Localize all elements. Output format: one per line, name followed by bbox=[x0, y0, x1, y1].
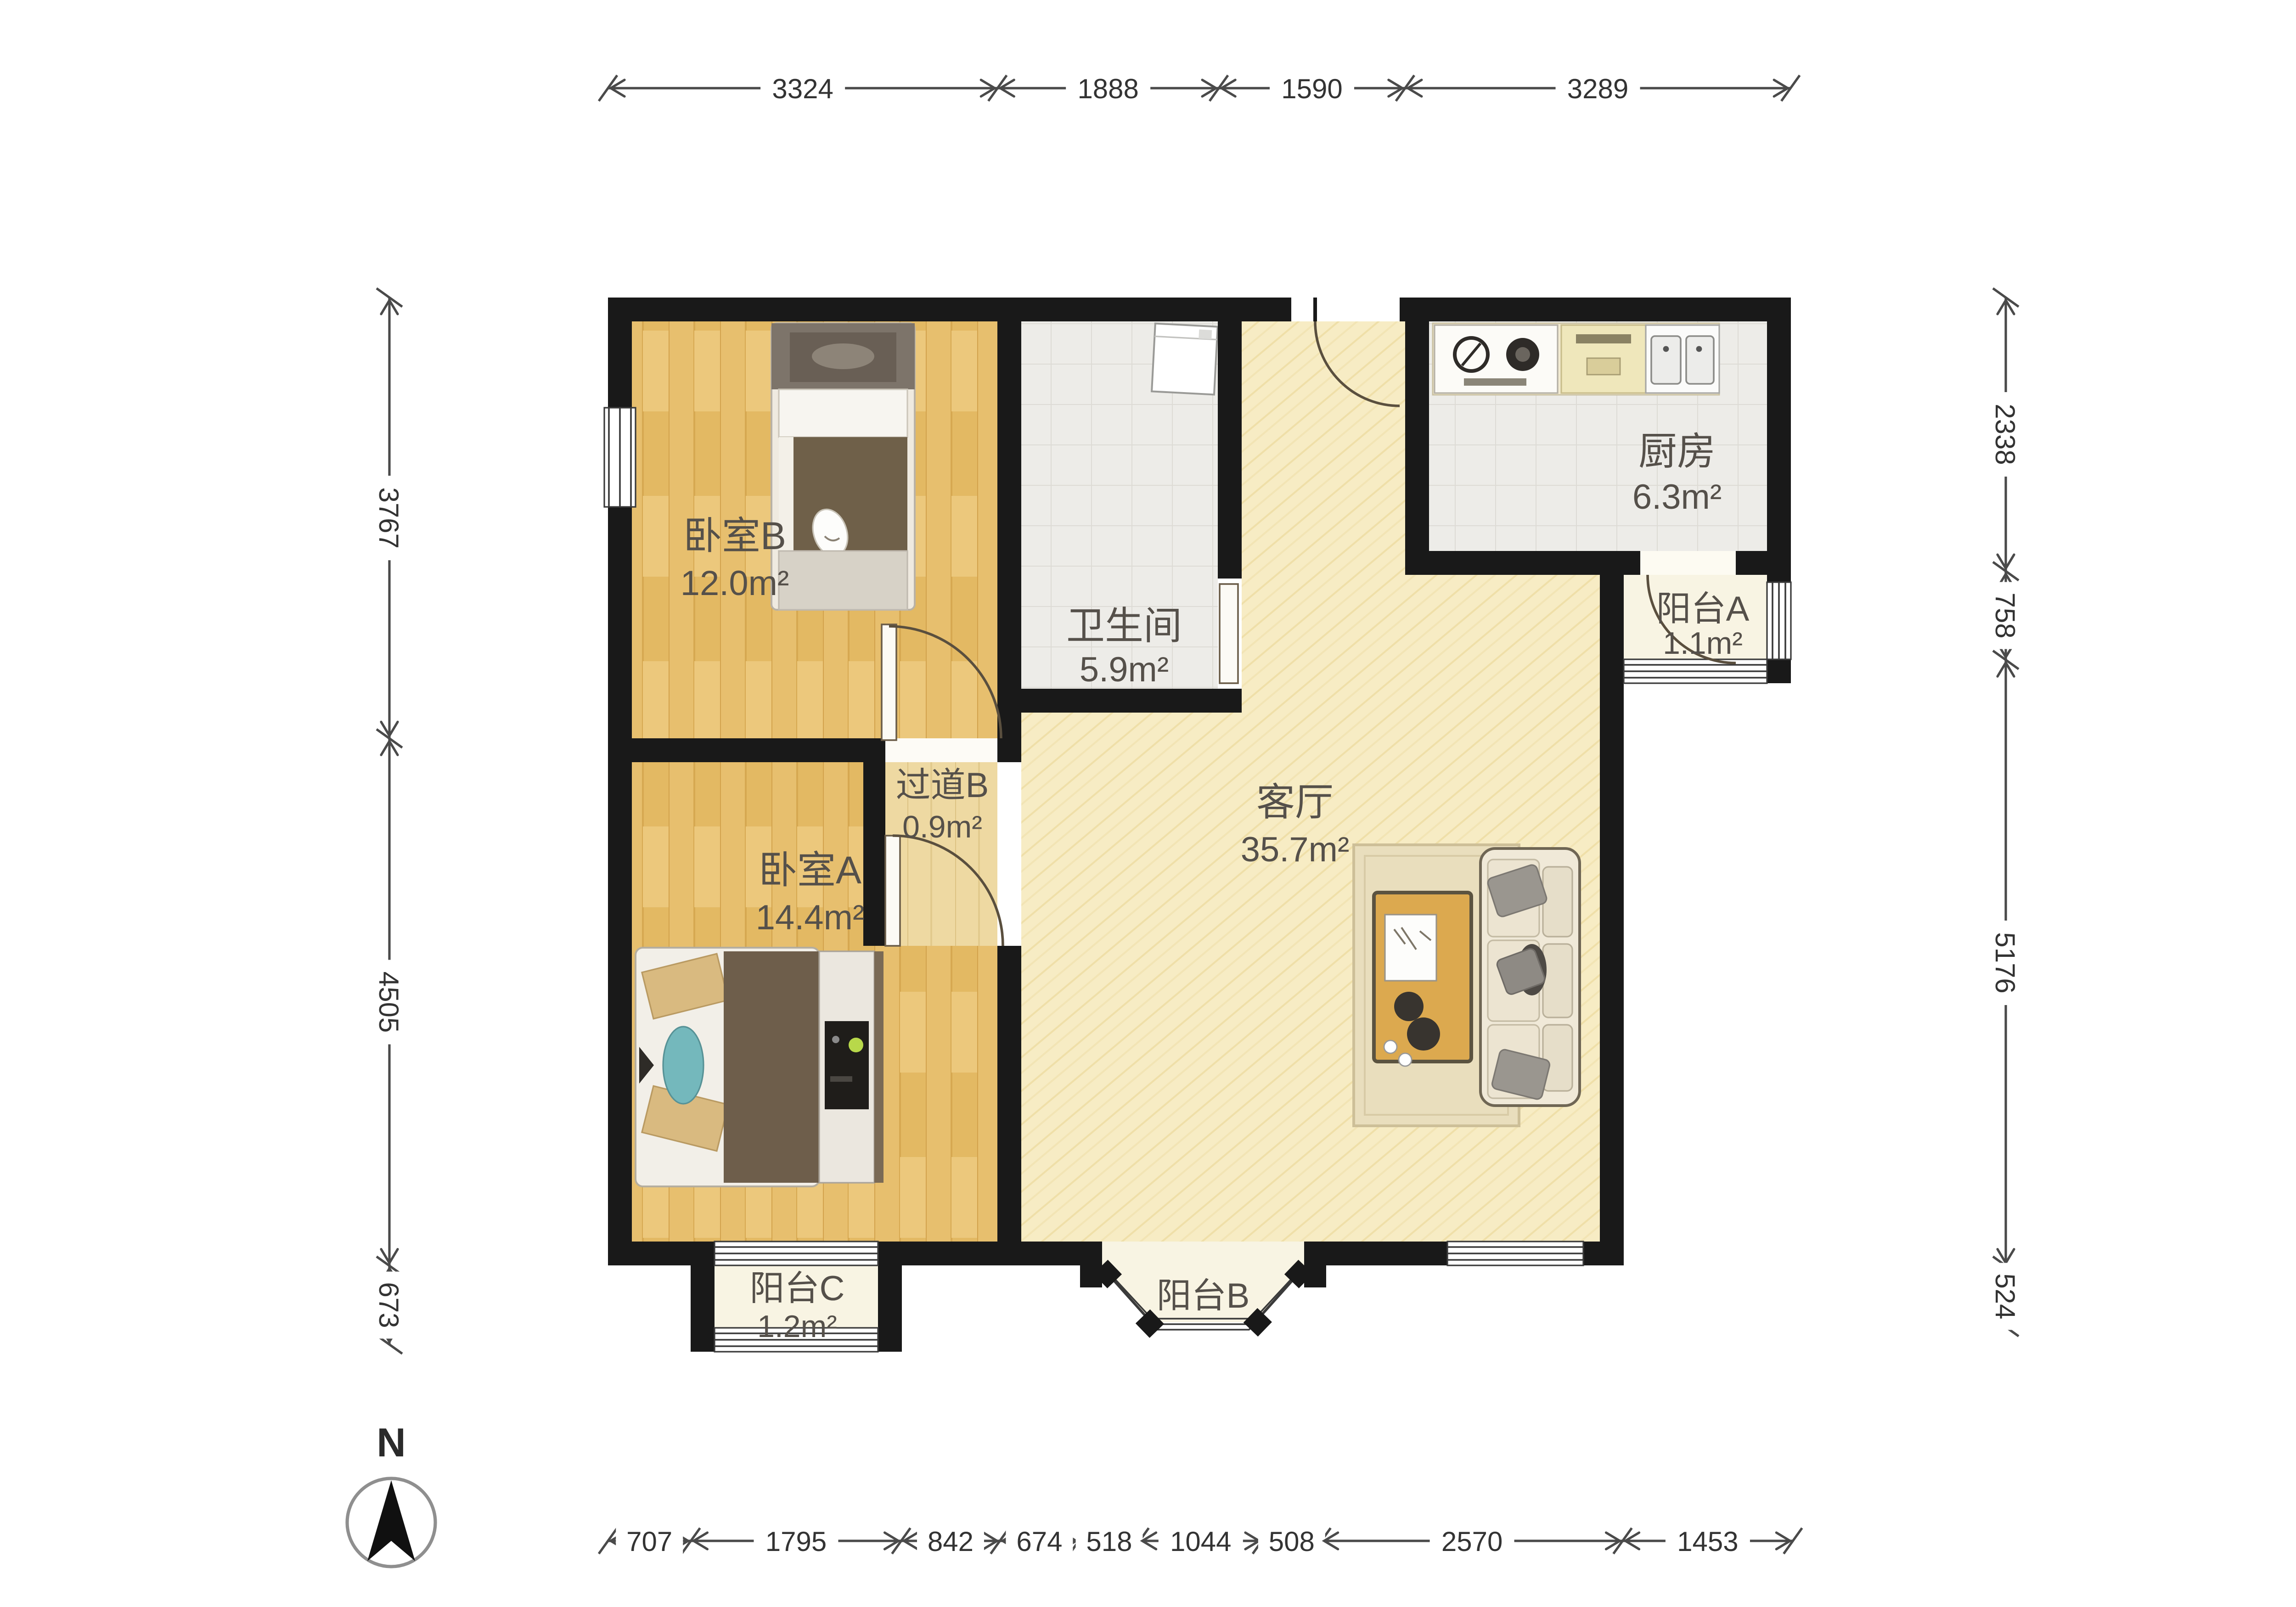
dim-label-left-1: 4505 bbox=[373, 972, 404, 1033]
bay-post-left bbox=[1080, 1242, 1102, 1287]
wall-bathroom-east bbox=[1218, 298, 1242, 579]
dim-label-right-3: 524 bbox=[1990, 1273, 2020, 1319]
dim-label-bottom-5: 1044 bbox=[1170, 1526, 1231, 1557]
wall-bottom-1 bbox=[608, 1242, 715, 1265]
kitchen-label: 厨房 bbox=[1638, 430, 1716, 473]
kitchen-area: 6.3m² bbox=[1632, 478, 1722, 517]
wall-bathroom-south bbox=[997, 689, 1242, 713]
window-bedroom-a-balcony bbox=[715, 1242, 878, 1265]
dim-label-left-2: 673 bbox=[373, 1282, 404, 1328]
wall-living-east bbox=[1600, 551, 1624, 1265]
hallway-b-label: 过道B bbox=[896, 766, 989, 805]
dim-label-bottom-1: 1795 bbox=[765, 1526, 827, 1557]
balcony-b-label: 阳台B bbox=[1157, 1276, 1250, 1315]
bedroom-a-label: 卧室A bbox=[759, 848, 861, 892]
wall-top-left bbox=[608, 298, 1291, 321]
hallway-b-area: 0.9m² bbox=[902, 809, 982, 844]
wall-bottom-4 bbox=[1583, 1242, 1624, 1265]
dim-label-left-0: 3767 bbox=[373, 487, 404, 548]
wall-kitchen-west bbox=[1405, 298, 1429, 551]
dim-label-top-2: 1590 bbox=[1281, 73, 1342, 104]
dim-label-bottom-8: 1453 bbox=[1677, 1526, 1738, 1557]
balcony-c-label: 阳台C bbox=[750, 1269, 845, 1308]
living-room-area: 35.7m² bbox=[1241, 830, 1350, 869]
bedroom-b-area: 12.0m² bbox=[681, 564, 789, 603]
washing-machine-icon bbox=[1152, 324, 1218, 395]
wall-bottom-3 bbox=[1326, 1242, 1447, 1265]
range-hood-icon bbox=[1561, 325, 1646, 393]
bed-a-icon bbox=[636, 948, 884, 1186]
balcony-c-wall-left bbox=[691, 1265, 715, 1352]
dim-label-bottom-3: 674 bbox=[1016, 1526, 1062, 1557]
bathroom-label: 卫生间 bbox=[1066, 604, 1182, 647]
dim-label-top-3: 3289 bbox=[1567, 73, 1628, 104]
compass-north-label: N bbox=[377, 1420, 406, 1465]
bed-b-icon bbox=[771, 323, 915, 610]
dim-label-top-1: 1888 bbox=[1077, 73, 1138, 104]
dim-label-right-1: 758 bbox=[1990, 593, 2020, 639]
coffee-table-icon bbox=[1374, 893, 1471, 1066]
dim-label-bottom-4: 518 bbox=[1086, 1526, 1132, 1557]
balcony-c-wall-right bbox=[878, 1265, 902, 1352]
stove-icon bbox=[1435, 325, 1558, 393]
balcony-a-label: 阳台A bbox=[1656, 590, 1750, 629]
window-bedroom-b-west bbox=[604, 408, 636, 507]
floor-plan-svg: 卧室B 12.0m² 卫生间 5.9m² 厨房 6.3m² 阳台A 1.1m² … bbox=[0, 0, 2296, 1607]
sofa-icon bbox=[1480, 848, 1580, 1106]
living-room-label: 客厅 bbox=[1256, 781, 1334, 824]
compass-icon: N bbox=[347, 1420, 435, 1567]
dim-label-right-2: 5176 bbox=[1990, 932, 2020, 993]
window-balcony-a-south bbox=[1624, 659, 1767, 683]
sink-icon bbox=[1646, 325, 1719, 393]
bedroom-b-label: 卧室B bbox=[683, 514, 786, 557]
balcony-a-corner bbox=[1767, 659, 1791, 683]
wall-hallway-west bbox=[863, 762, 885, 946]
wall-center-lower bbox=[997, 946, 1021, 1265]
dim-label-bottom-6: 508 bbox=[1269, 1526, 1315, 1557]
wall-kitchen-south-right bbox=[1736, 551, 1791, 575]
wall-top-right bbox=[1400, 298, 1791, 321]
dim-label-top-0: 3324 bbox=[772, 73, 833, 104]
window-balcony-a-east bbox=[1767, 582, 1791, 659]
dim-label-bottom-7: 2570 bbox=[1441, 1526, 1503, 1557]
floor-plan-page: 卧室B 12.0m² 卫生间 5.9m² 厨房 6.3m² 阳台A 1.1m² … bbox=[0, 0, 2296, 1607]
bedroom-a-area: 14.4m² bbox=[756, 898, 865, 937]
bay-post-right bbox=[1304, 1242, 1326, 1287]
bathroom-area: 5.9m² bbox=[1080, 650, 1169, 689]
balcony-a-area: 1.1m² bbox=[1663, 626, 1743, 661]
balcony-c-area: 1.2m² bbox=[757, 1309, 837, 1344]
dim-label-bottom-2: 842 bbox=[928, 1526, 974, 1557]
wall-bottom-2 bbox=[878, 1242, 1080, 1265]
kitchen-counter bbox=[1433, 323, 1719, 395]
window-living-south bbox=[1447, 1242, 1583, 1265]
wall-bedroomb-south bbox=[608, 738, 885, 762]
dim-label-bottom-0: 707 bbox=[626, 1526, 672, 1557]
bathroom-door bbox=[1218, 579, 1242, 683]
dim-label-right-0: 2338 bbox=[1990, 404, 2020, 465]
